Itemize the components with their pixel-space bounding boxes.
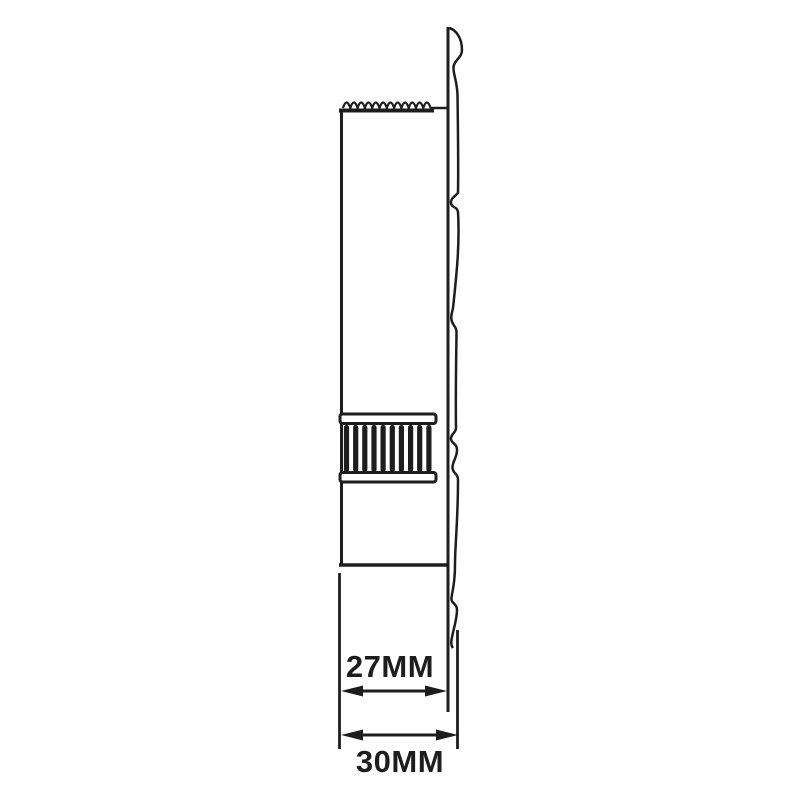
dimension-30mm bbox=[341, 730, 458, 741]
dimension-27mm bbox=[341, 686, 447, 697]
serrated-top-edge bbox=[343, 103, 431, 109]
dim-27-arrowhead-right bbox=[425, 686, 447, 697]
dim-27-arrowhead-left bbox=[341, 686, 363, 697]
knurl-top-flange bbox=[340, 414, 436, 424]
knurled-band bbox=[340, 414, 436, 482]
outer-tube bbox=[448, 27, 462, 712]
knurl-bottom-flange bbox=[340, 473, 436, 483]
dimension-label-30mm: 30MM bbox=[345, 746, 455, 777]
inner-pole-body bbox=[339, 103, 449, 567]
knurl-ribs bbox=[347, 428, 429, 470]
dim-30-arrowhead-right bbox=[436, 730, 458, 741]
dimension-label-27mm: 27MM bbox=[335, 651, 445, 682]
break-line-wavy-edge bbox=[450, 28, 463, 648]
dim-30-arrowhead-left bbox=[341, 730, 363, 741]
technical-drawing-canvas: 27MM 30MM bbox=[0, 0, 800, 800]
